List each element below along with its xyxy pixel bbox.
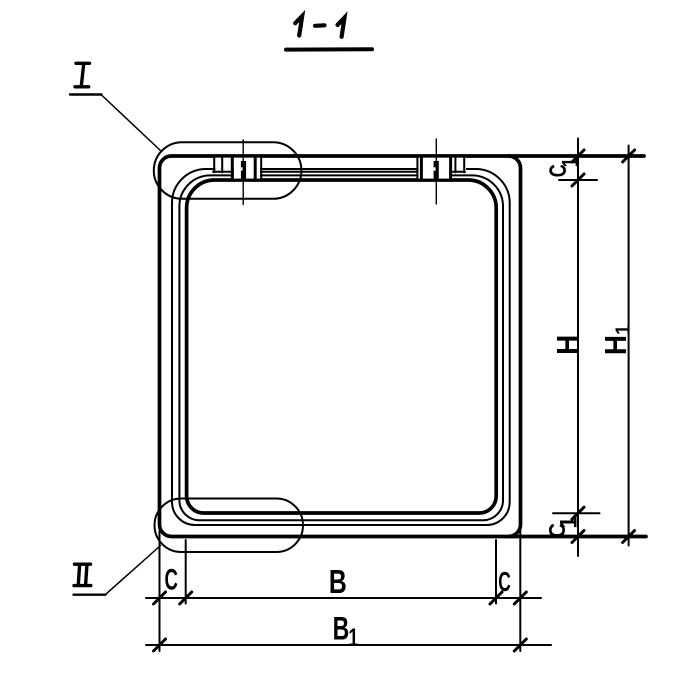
svg-text:H: H bbox=[551, 335, 586, 355]
svg-text:B: B bbox=[333, 611, 350, 647]
svg-text:H: H bbox=[599, 335, 634, 355]
svg-text:1: 1 bbox=[348, 623, 358, 652]
svg-text:1: 1 bbox=[559, 158, 584, 168]
svg-text:B: B bbox=[329, 565, 347, 601]
svg-text:C: C bbox=[498, 566, 511, 597]
svg-text:C: C bbox=[164, 563, 177, 597]
svg-text:1: 1 bbox=[613, 324, 635, 334]
svg-text:1: 1 bbox=[555, 516, 582, 528]
